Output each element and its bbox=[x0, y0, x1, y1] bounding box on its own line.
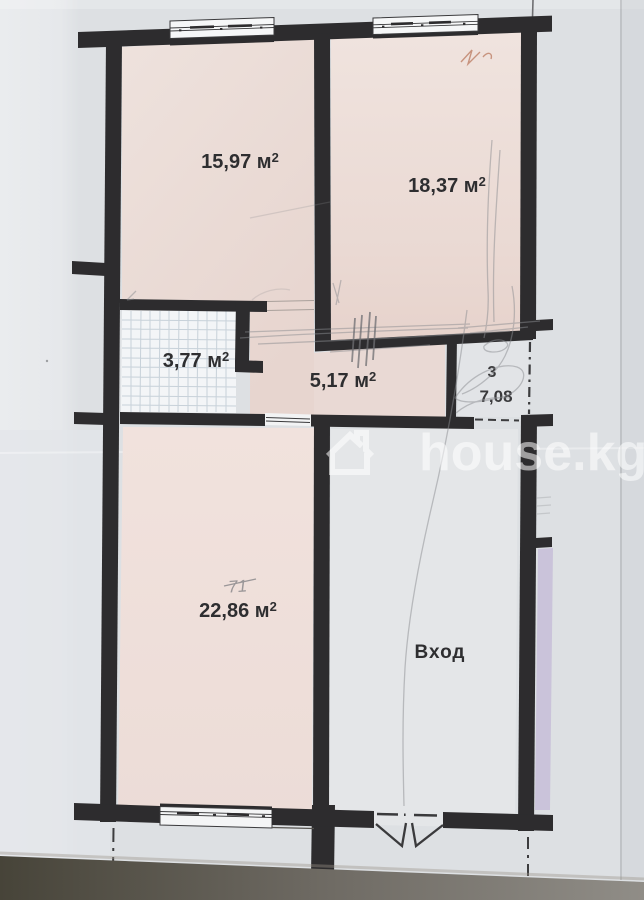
svg-text:3,77 м2: 3,77 м2 bbox=[163, 349, 230, 372]
svg-text:7,08: 7,08 bbox=[479, 387, 512, 406]
svg-text:71: 71 bbox=[227, 576, 247, 596]
svg-text:18,37 м2: 18,37 м2 bbox=[408, 174, 486, 197]
svg-text:house.kg: house.kg bbox=[419, 424, 644, 482]
svg-text:3: 3 bbox=[488, 364, 497, 381]
svg-text:22,86 м2: 22,86 м2 bbox=[199, 599, 277, 622]
svg-text:15,97 м2: 15,97 м2 bbox=[201, 150, 279, 173]
svg-text:5,17 м2: 5,17 м2 bbox=[310, 369, 377, 392]
svg-text:Вход: Вход bbox=[415, 642, 466, 663]
